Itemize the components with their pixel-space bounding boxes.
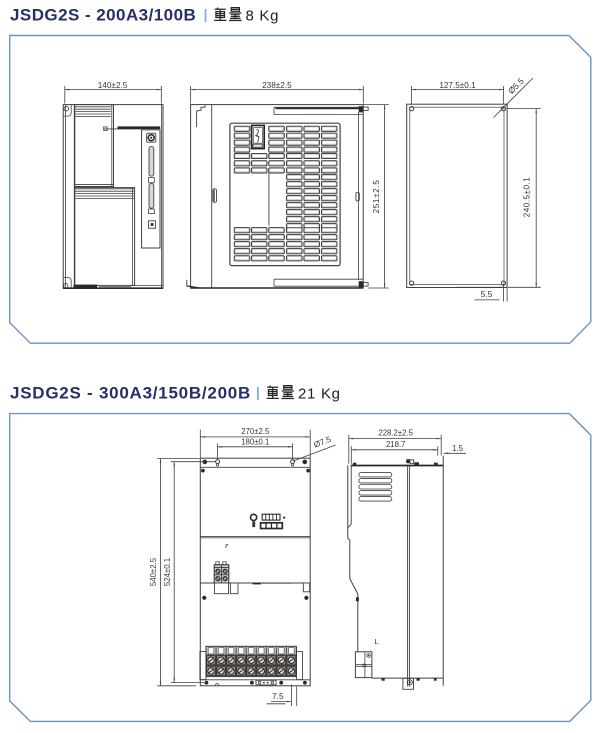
svg-text:1.5: 1.5 bbox=[452, 444, 464, 453]
svg-text:7.5: 7.5 bbox=[272, 691, 284, 701]
svg-text:JSDG2S - 300A3/150B/200B: JSDG2S - 300A3/150B/200B bbox=[10, 384, 251, 403]
svg-text:240.5±0.1: 240.5±0.1 bbox=[522, 177, 531, 217]
svg-text:8 Kg: 8 Kg bbox=[246, 8, 280, 25]
svg-text:5.5: 5.5 bbox=[481, 289, 493, 299]
svg-text:L: L bbox=[374, 637, 378, 646]
svg-text:180±0.1: 180±0.1 bbox=[241, 437, 269, 446]
svg-text:238±2.5: 238±2.5 bbox=[262, 81, 292, 90]
svg-text:524±0.1: 524±0.1 bbox=[163, 558, 172, 586]
svg-text:127.5±0.1: 127.5±0.1 bbox=[439, 81, 476, 90]
svg-text:JSDG2S - 200A3/100B: JSDG2S - 200A3/100B bbox=[10, 6, 196, 25]
svg-text:140±2.5: 140±2.5 bbox=[98, 81, 128, 90]
svg-text:218.7: 218.7 bbox=[386, 440, 406, 449]
svg-text:251±2.5: 251±2.5 bbox=[372, 180, 381, 214]
svg-text:540±2.5: 540±2.5 bbox=[149, 557, 158, 586]
svg-text:270±2.5: 270±2.5 bbox=[241, 427, 270, 436]
svg-text:228.2±2.5: 228.2±2.5 bbox=[378, 429, 413, 438]
svg-text:Ø5.5: Ø5.5 bbox=[506, 76, 526, 96]
svg-text:21 Kg: 21 Kg bbox=[298, 386, 341, 403]
